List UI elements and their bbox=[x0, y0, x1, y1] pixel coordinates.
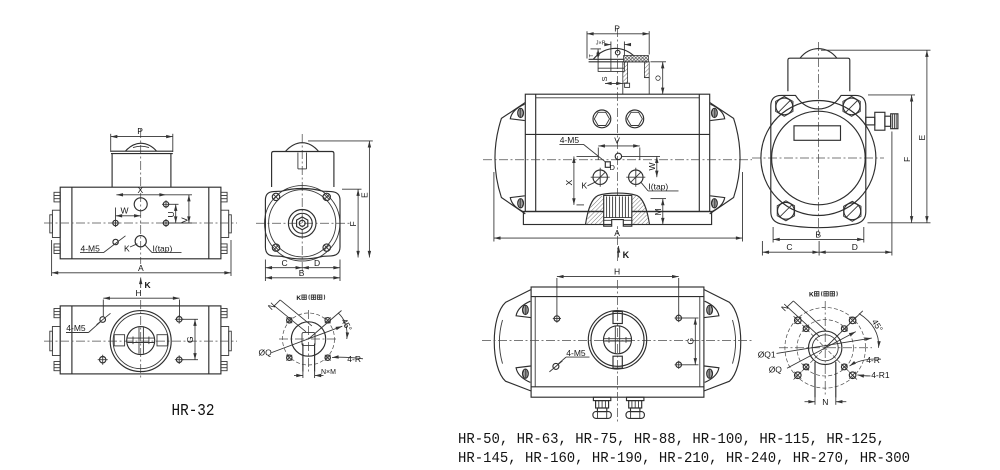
svg-text:K: K bbox=[623, 250, 630, 260]
svg-text:G: G bbox=[685, 338, 695, 345]
svg-text:X: X bbox=[564, 180, 574, 186]
svg-text:N: N bbox=[779, 302, 790, 313]
svg-text:4-R: 4-R bbox=[347, 354, 361, 364]
svg-text:HR-32: HR-32 bbox=[172, 402, 215, 421]
svg-text:F: F bbox=[902, 157, 912, 162]
svg-text:HR-145, HR-160, HR-190, HR-210: HR-145, HR-160, HR-190, HR-210, HR-240, … bbox=[458, 451, 910, 467]
svg-text:HR-50, HR-63, HR-75, HR-88, HR: HR-50, HR-63, HR-75, HR-88, HR-100, HR-1… bbox=[458, 432, 885, 448]
svg-text:T: T bbox=[589, 54, 595, 58]
svg-text:H: H bbox=[614, 266, 620, 276]
svg-text:M: M bbox=[653, 208, 663, 215]
svg-text:J×P: J×P bbox=[596, 40, 606, 46]
svg-text:4-M5: 4-M5 bbox=[566, 348, 586, 358]
svg-text:K: K bbox=[145, 280, 152, 290]
svg-text:I(tap): I(tap) bbox=[648, 182, 668, 192]
svg-text:4-M5: 4-M5 bbox=[66, 323, 86, 333]
svg-text:A: A bbox=[614, 228, 620, 238]
svg-text:4-M5: 4-M5 bbox=[560, 135, 580, 145]
svg-text:G: G bbox=[185, 336, 195, 343]
svg-text:C: C bbox=[282, 258, 288, 268]
svg-text:F: F bbox=[348, 221, 358, 226]
svg-text:B: B bbox=[299, 268, 305, 278]
svg-text:A: A bbox=[138, 263, 144, 273]
svg-text:ØQ: ØQ bbox=[259, 347, 273, 357]
svg-text:N×M: N×M bbox=[321, 369, 336, 376]
svg-text:O: O bbox=[654, 75, 663, 81]
svg-text:N: N bbox=[266, 301, 277, 312]
svg-text:E: E bbox=[917, 135, 927, 141]
svg-text:D: D bbox=[852, 242, 858, 252]
svg-text:V: V bbox=[614, 136, 620, 146]
svg-text:C: C bbox=[786, 242, 792, 252]
svg-text:K: K bbox=[809, 291, 814, 298]
svg-text:D: D bbox=[314, 258, 320, 268]
svg-text:45°: 45° bbox=[870, 317, 885, 333]
svg-text:ØQ: ØQ bbox=[769, 364, 783, 374]
svg-text:ØQ1: ØQ1 bbox=[758, 349, 776, 359]
svg-text:N: N bbox=[822, 397, 828, 407]
svg-text:E: E bbox=[359, 192, 369, 198]
svg-text:I(tap): I(tap) bbox=[153, 243, 173, 253]
svg-text:W: W bbox=[121, 206, 129, 216]
svg-text:W: W bbox=[647, 162, 657, 170]
svg-text:P: P bbox=[137, 126, 143, 136]
svg-text:4-M5: 4-M5 bbox=[81, 243, 101, 253]
svg-text:B: B bbox=[815, 230, 821, 240]
svg-text:4-R1: 4-R1 bbox=[871, 370, 890, 380]
svg-text:V: V bbox=[179, 217, 189, 223]
svg-text:S: S bbox=[600, 76, 609, 81]
svg-text:K: K bbox=[582, 180, 588, 190]
svg-text:H: H bbox=[136, 288, 142, 298]
svg-text:K: K bbox=[296, 295, 301, 302]
svg-text:X: X bbox=[138, 185, 144, 195]
svg-text:45°: 45° bbox=[339, 317, 354, 333]
svg-text:D: D bbox=[610, 163, 616, 172]
svg-text:P: P bbox=[614, 24, 620, 34]
svg-text:K: K bbox=[124, 243, 130, 253]
svg-text:U: U bbox=[166, 211, 176, 217]
